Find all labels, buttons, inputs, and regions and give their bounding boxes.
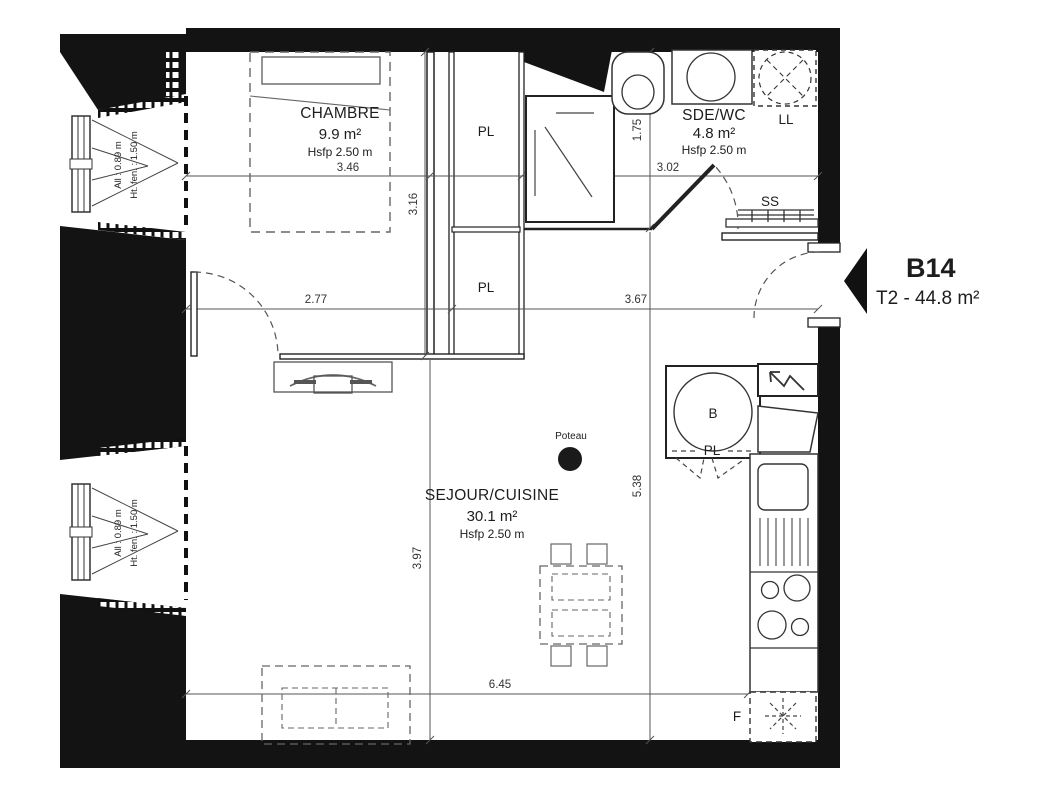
doors (191, 165, 820, 356)
dim-sde-depth: 1.75 (632, 119, 644, 141)
unit-id: B14 (906, 253, 956, 283)
dim-chambre-depth: 3.16 (408, 193, 420, 215)
floorplan-page: 3.46 3.02 2.77 3.67 3.16 1.75 5.38 3.97 … (0, 0, 1057, 800)
right-wall-upper (818, 52, 840, 252)
dim-sejour-depth-right: 5.38 (632, 475, 644, 497)
fridge-label: F (733, 709, 741, 724)
boiler-closet (666, 366, 760, 478)
sde-name: SDE/WC (682, 107, 746, 124)
fridge (750, 692, 816, 742)
top-wall (186, 28, 840, 52)
washing-machine-label: LL (778, 112, 794, 127)
dim-hall-right: 3.67 (625, 294, 647, 306)
left-wall-mass-bottom (60, 594, 186, 768)
chair (587, 544, 607, 564)
closet-hall-label: PL (478, 280, 495, 295)
chambre-area: 9.9 m² (319, 126, 362, 143)
chambre-door-leaf (191, 272, 197, 356)
entrance-door-swing (754, 252, 820, 318)
sde-height: Hsfp 2.50 m (682, 143, 747, 157)
boiler-label: B (708, 406, 717, 421)
dimension-labels: 3.46 3.02 2.77 3.67 3.16 1.75 5.38 3.97 … (305, 119, 679, 691)
sde-door-leaf (652, 165, 714, 229)
floorplan-drawing: 3.46 3.02 2.77 3.67 3.16 1.75 5.38 3.97 … (0, 0, 1057, 800)
window-height-note: Ht. fen. : 1.50 m (129, 499, 140, 567)
chambre-east-wall (427, 52, 434, 356)
sejour-area: 30.1 m² (467, 508, 518, 525)
wall-wedge-shower (524, 50, 612, 92)
window-sill-note: All : 0.89 m (113, 141, 124, 189)
right-wall-lower (818, 318, 840, 768)
chambre-height: Hsfp 2.50 m (308, 145, 373, 159)
window-bay-1: All : 0.89 m Ht. fen. : 1.50 m (70, 116, 178, 212)
closet-east-wall (519, 52, 524, 358)
range-hood (758, 406, 818, 452)
dim-sejour-depth-left: 3.97 (412, 547, 424, 569)
towel-dryer-label: SS (761, 194, 779, 209)
entrance-arrow-icon (844, 248, 867, 314)
closet-separator (452, 227, 520, 232)
sejour-height: Hsfp 2.50 m (460, 527, 525, 541)
closet-west-wall (449, 52, 454, 358)
door-jamb (808, 318, 840, 327)
closet-door-fold (676, 458, 704, 478)
dim-sde-width: 3.02 (657, 162, 679, 174)
sejour-name: SEJOUR/CUISINE (425, 487, 559, 504)
dim-sejour-width: 6.45 (489, 679, 511, 691)
sideboard (274, 362, 392, 393)
column-label: Poteau (555, 431, 587, 442)
electrical-panel (758, 364, 818, 396)
closet-boiler-label: PL (704, 443, 721, 458)
chambre-door-swing (194, 272, 278, 356)
chair (587, 646, 607, 666)
sejour-north-wall (280, 354, 524, 359)
chair (551, 646, 571, 666)
closet-top-label: PL (478, 124, 495, 139)
entry-wall (722, 233, 818, 240)
window-sill-note: All : 0.89 m (113, 509, 124, 557)
dim-hall-left: 2.77 (305, 294, 327, 306)
toilet (612, 52, 664, 114)
insulation-strip (166, 50, 180, 96)
closet-door-fold (712, 458, 746, 478)
dim-chambre-width: 3.46 (337, 162, 359, 174)
pillow (262, 57, 380, 84)
sde-area: 4.8 m² (693, 125, 736, 142)
structural-column (558, 447, 582, 471)
chambre-name: CHAMBRE (300, 105, 380, 122)
dining-table (540, 544, 622, 666)
window-handle (70, 159, 92, 169)
unit-type-area: T2 - 44.8 m² (876, 288, 979, 309)
kitchen-counter (750, 454, 818, 692)
chair (551, 544, 571, 564)
shower (526, 96, 614, 222)
washbasin (672, 50, 752, 104)
left-wall-mass-middle (60, 226, 186, 460)
sink (758, 464, 808, 510)
window-height-note: Ht. fen. : 1.50 m (129, 131, 140, 199)
washing-machine (754, 50, 816, 106)
unit-marker: B14 T2 - 44.8 m² (844, 248, 979, 314)
window-handle (70, 527, 92, 537)
door-jamb (808, 243, 840, 252)
sofa (262, 666, 410, 744)
window-bay-2: All : 0.89 m Ht. fen. : 1.50 m (70, 484, 178, 580)
towel-dryer (726, 210, 818, 227)
